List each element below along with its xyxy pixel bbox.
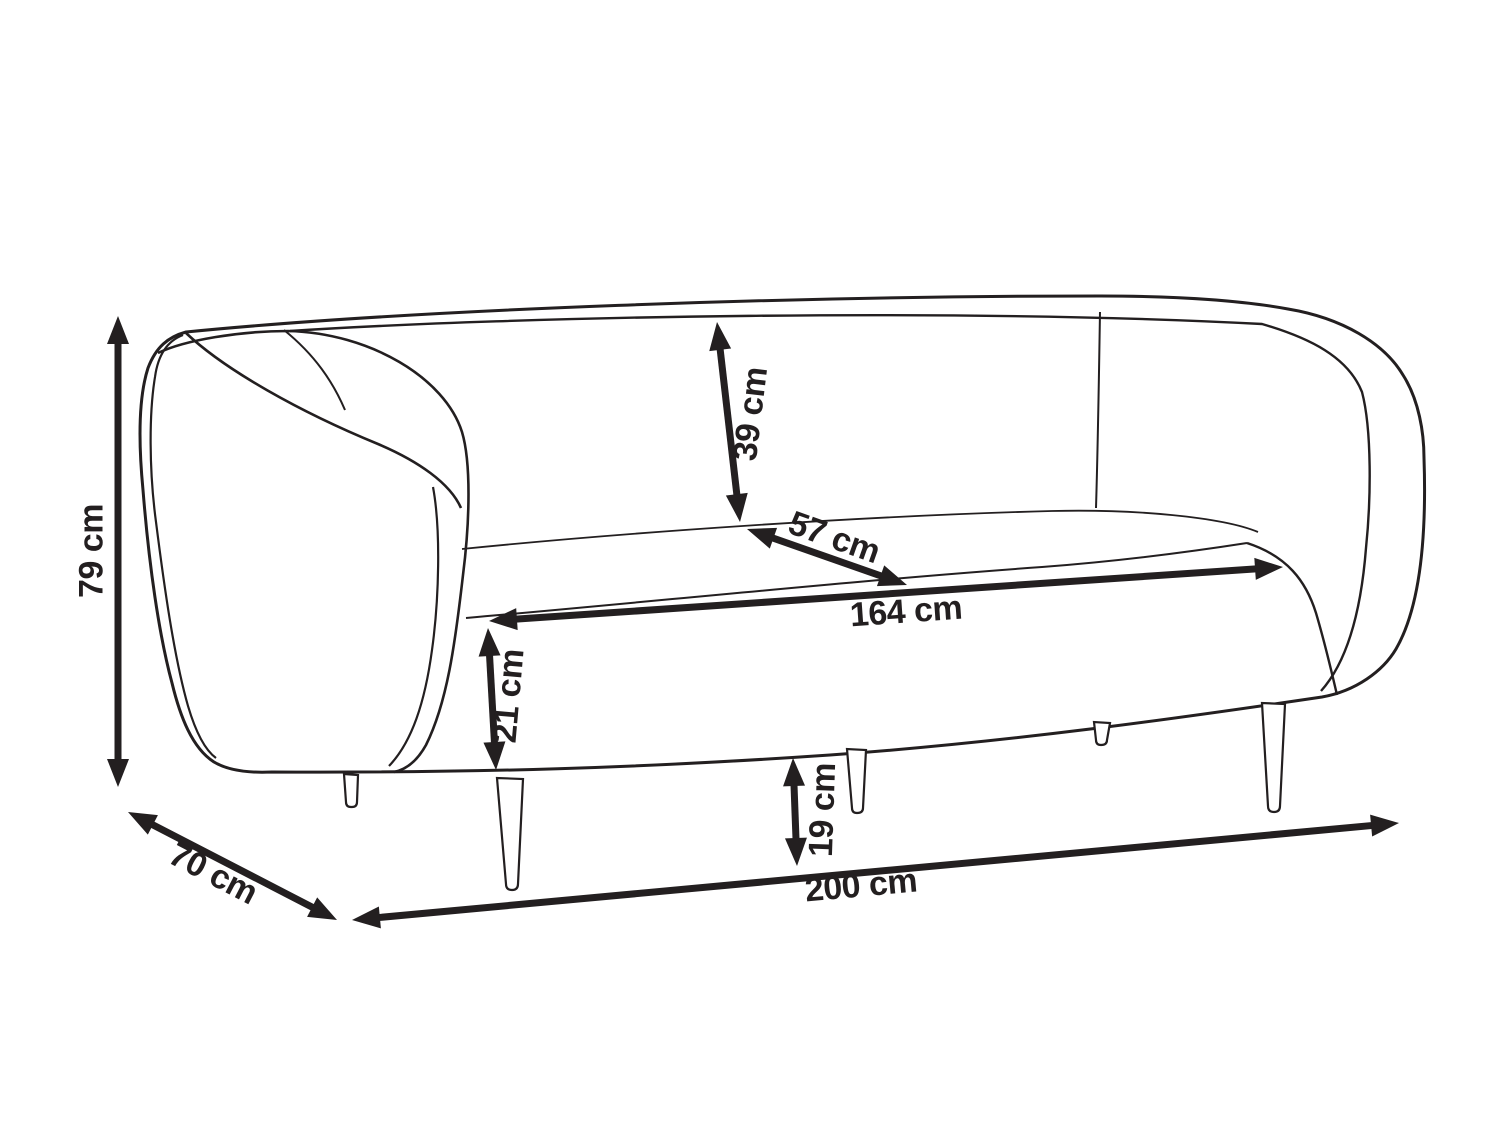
dimension-arrow-leg-height bbox=[794, 778, 797, 847]
dimension-label-leg-height: 19 cm bbox=[802, 762, 844, 857]
sofa-leg-front-right bbox=[1262, 703, 1285, 812]
sofa-leg-front-middle bbox=[847, 749, 866, 813]
dimension-arrowhead-overall-width-end bbox=[1370, 815, 1399, 837]
dimension-label-overall-height: 79 cm bbox=[73, 504, 112, 598]
sofa-leg-back-left bbox=[344, 774, 358, 807]
dimension-label-seat-cushion-height: 21 cm bbox=[485, 648, 532, 745]
dimension-arrowhead-overall-height-start bbox=[107, 316, 129, 344]
dimension-arrowhead-overall-depth-start bbox=[128, 812, 158, 835]
dimension-arrowhead-overall-height-end bbox=[107, 759, 129, 787]
sofa-leg-back-right bbox=[1094, 722, 1110, 745]
sofa-outline bbox=[140, 296, 1425, 772]
sofa-dimension-diagram: 79 cm 70 cm 200 cm 164 cm 57 cm 39 cm 21… bbox=[0, 0, 1500, 1125]
dimension-arrowhead-leg-height-start bbox=[783, 758, 805, 786]
dimension-label-seat-width: 164 cm bbox=[849, 589, 964, 636]
dimension-arrowhead-overall-width-start bbox=[352, 906, 381, 928]
sofa-technical-drawing bbox=[0, 0, 1500, 1125]
dimension-arrowhead-overall-depth-end bbox=[307, 897, 337, 920]
sofa-leg-front-left bbox=[497, 778, 523, 890]
